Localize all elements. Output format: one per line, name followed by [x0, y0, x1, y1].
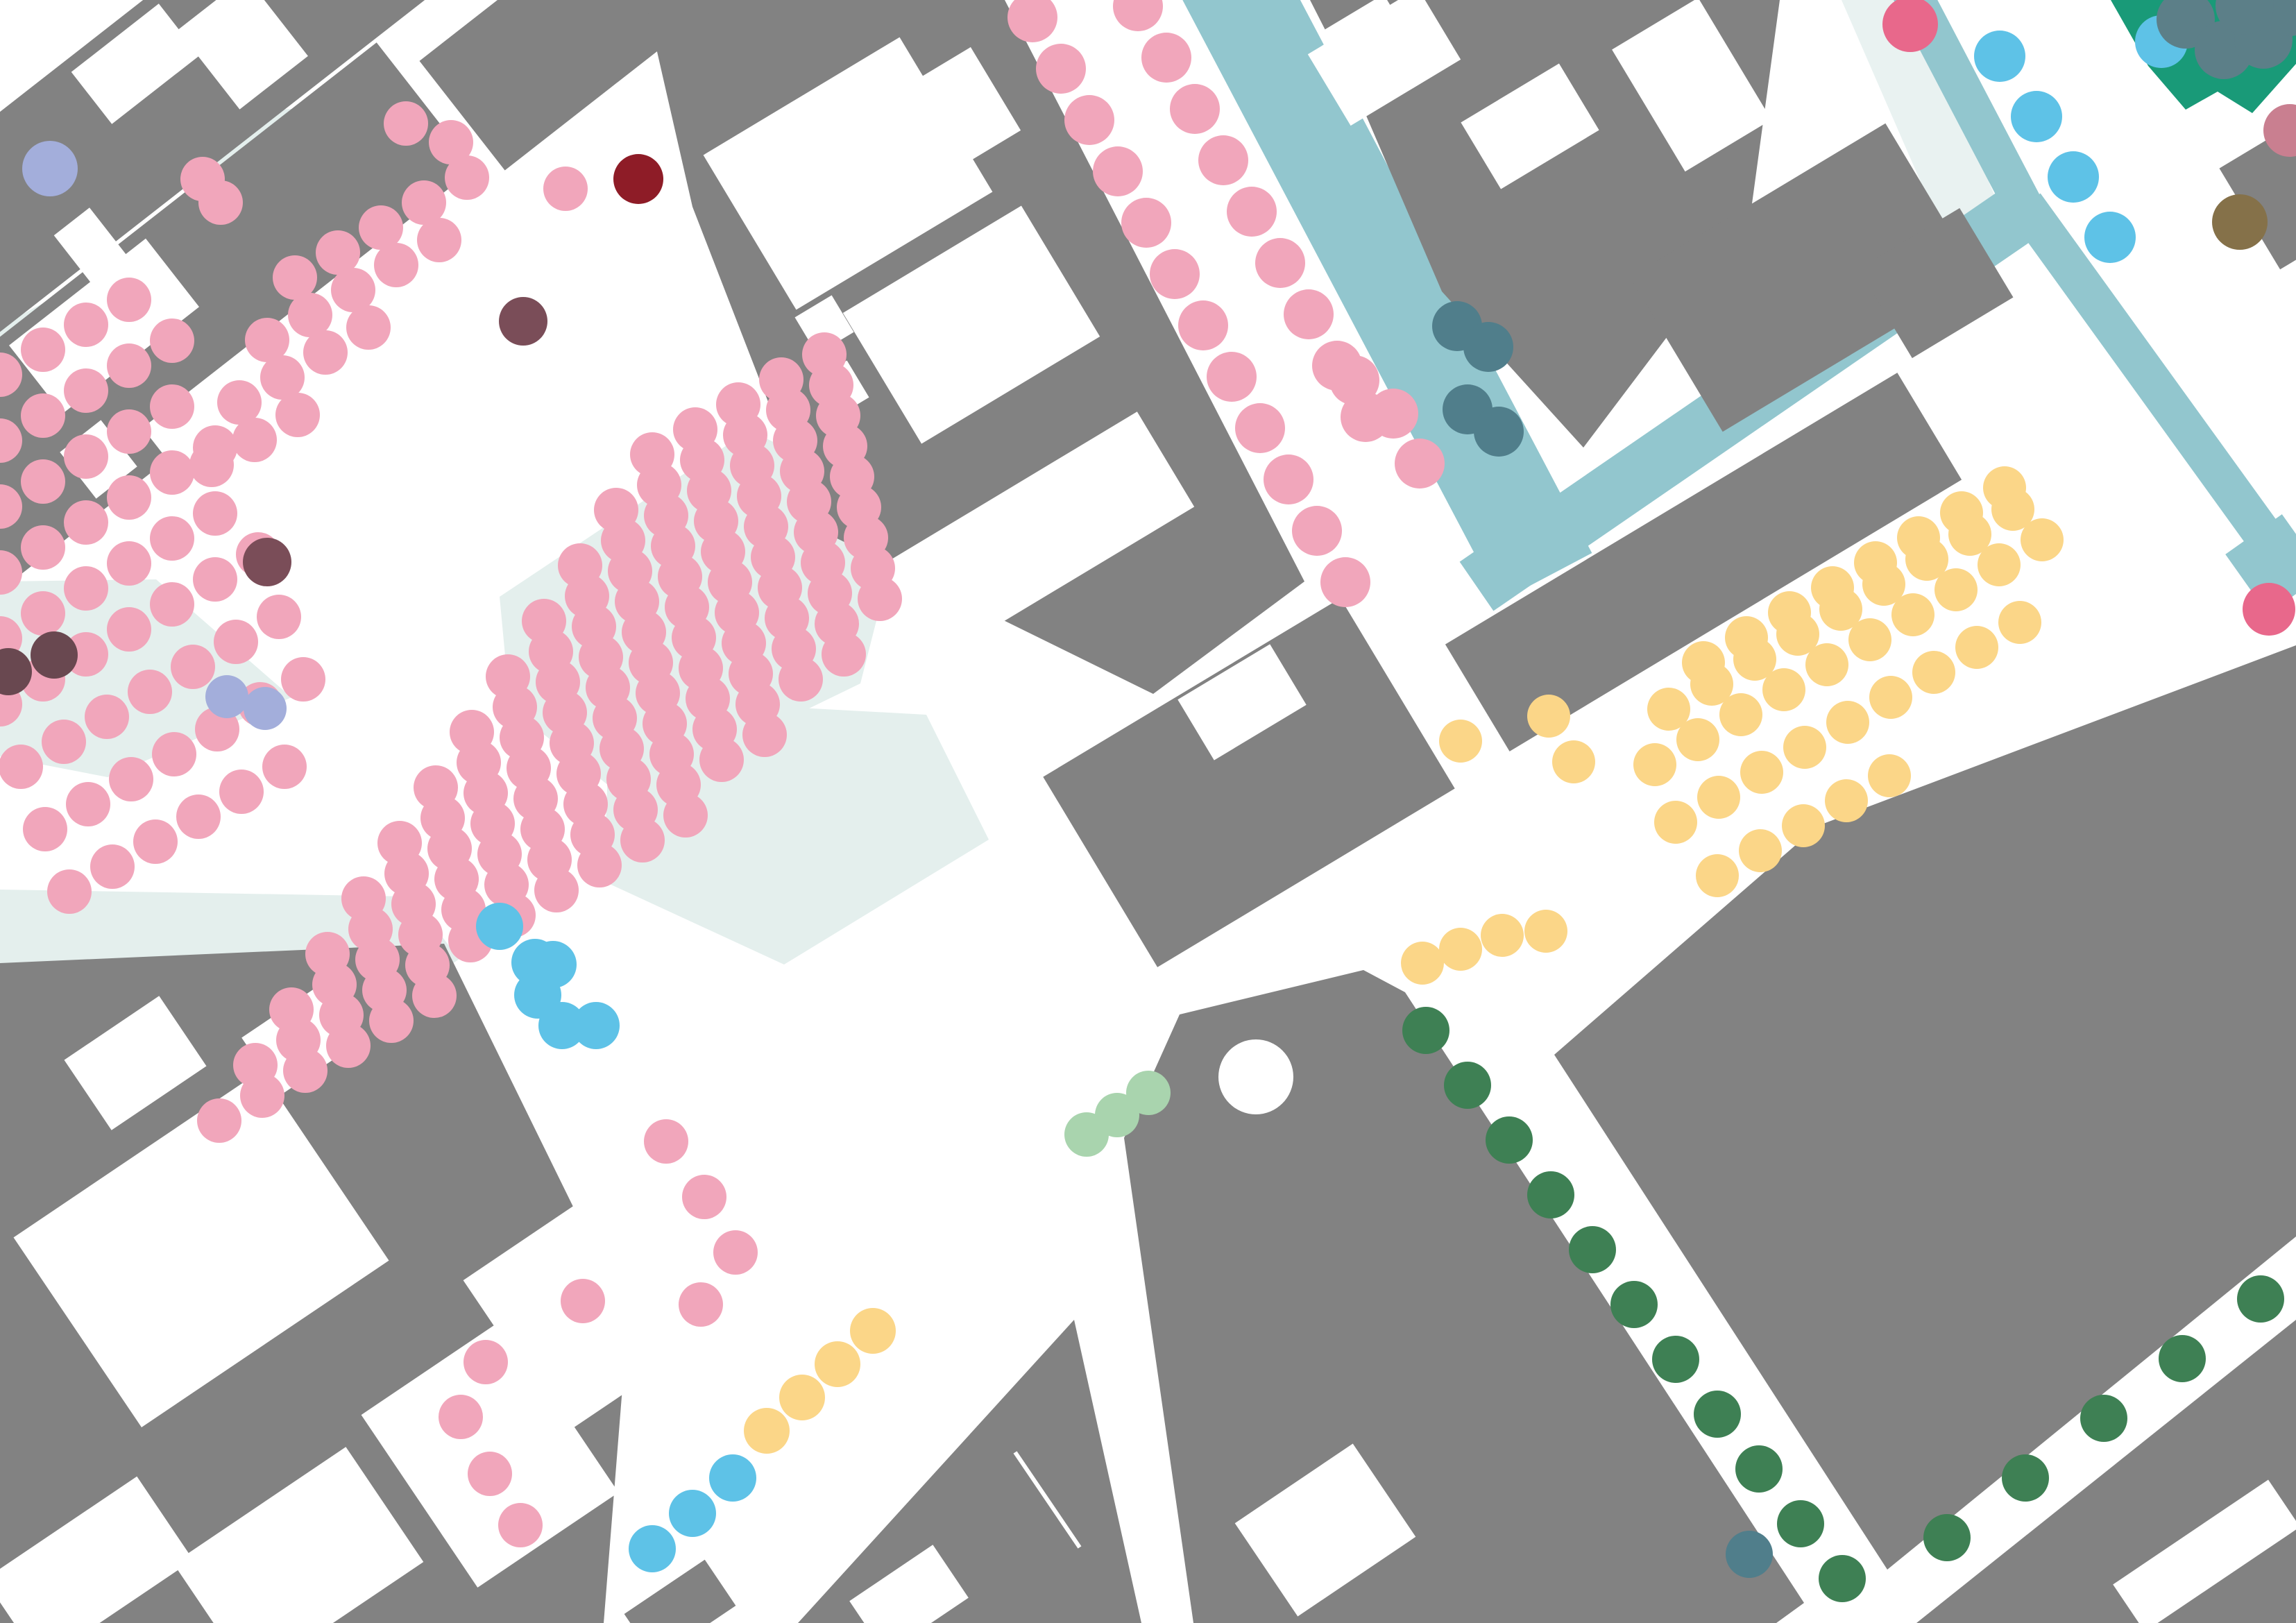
tree-dot-pink: [275, 393, 320, 437]
tree-dot-pink: [1036, 44, 1086, 94]
tree-dot-yellow: [1524, 910, 1567, 953]
tree-dot-pink: [21, 328, 65, 372]
tree-dot-green: [1652, 1336, 1699, 1383]
tree-dot-pink: [150, 582, 194, 627]
tree-dot-yellow: [1848, 618, 1891, 661]
tree-dot-teal-slate: [1726, 1531, 1773, 1578]
tree-dot-green: [1444, 1062, 1491, 1109]
tree-dot-sky-blue: [709, 1454, 756, 1502]
map-canvas[interactable]: [0, 0, 2296, 1623]
tree-dot-pink: [219, 770, 264, 814]
city-tree-map[interactable]: [0, 0, 2296, 1623]
tree-dot-pink: [107, 607, 151, 652]
tree-dot-dark-maroon: [31, 631, 78, 679]
tree-dot-pink: [779, 657, 823, 702]
tree-dot-pink: [171, 645, 215, 689]
tree-dot-pink: [150, 384, 194, 429]
tree-dot-yellow: [1868, 754, 1911, 797]
tree-dot-pink: [1235, 403, 1285, 453]
tree-dot-pink: [23, 807, 67, 851]
tree-dot-pink: [21, 459, 65, 504]
tree-dot-yellow: [1696, 854, 1739, 897]
tree-dot-pink: [1292, 506, 1342, 556]
tree-dot-yellow: [1934, 568, 1978, 611]
tree-dot-teal-slate: [1463, 322, 1513, 372]
tree-dot-dark-red: [613, 154, 663, 204]
tree-dot-pink: [1113, 0, 1163, 31]
tree-dot-pink: [374, 243, 418, 287]
courtyard-arc: [1218, 1039, 1293, 1114]
canal: [2025, 205, 2283, 562]
tree-dot-pink: [1255, 238, 1305, 288]
tree-dot-pink: [1093, 146, 1143, 196]
tree-dot-pink: [1395, 439, 1445, 488]
tree-dot-pink: [1227, 187, 1277, 237]
tree-dot-green: [1819, 1555, 1866, 1602]
tree-dot-yellow: [1955, 626, 1998, 669]
tree-dot-pink: [417, 218, 461, 262]
tree-dot-maroon: [243, 538, 291, 586]
tree-dot-pink: [468, 1452, 512, 1496]
tree-dot-pink: [1264, 454, 1313, 504]
tree-dot-green: [2080, 1395, 2127, 1442]
tree-dot-yellow: [744, 1408, 790, 1454]
tree-dot-pink: [21, 591, 65, 636]
tree-dot-green: [2237, 1275, 2284, 1323]
tree-dot-teal-slate: [1474, 407, 1524, 457]
tree-dot-pink: [369, 999, 414, 1043]
tree-dot-pink: [644, 1119, 688, 1164]
tree-dot-pink: [64, 368, 108, 413]
tree-dot-pink: [193, 491, 237, 536]
tree-dot-pink: [543, 167, 588, 211]
tree-dot-crimson: [2243, 583, 2295, 636]
tree-dot-pink: [1064, 95, 1114, 145]
tree-dot-pink: [534, 868, 579, 912]
tree-dot-yellow: [1912, 651, 1955, 694]
tree-dot-yellow: [1654, 801, 1697, 844]
tree-dot-pink: [1207, 352, 1257, 402]
tree-dot-pink: [1141, 33, 1191, 83]
tree-dot-pink: [21, 525, 65, 570]
tree-dot-pink: [384, 101, 428, 146]
tree-dot-pink: [107, 541, 151, 586]
tree-dot-yellow: [1891, 593, 1934, 636]
tree-dot-pink: [64, 566, 108, 611]
tree-dot-pink: [1329, 355, 1379, 405]
tree-dot-pink: [150, 516, 194, 561]
tree-dot-pink: [0, 745, 43, 789]
tree-dot-pink: [150, 318, 194, 363]
tree-dot-pink: [42, 720, 86, 764]
tree-dot-pink: [1368, 389, 1418, 439]
tree-dot-pink: [240, 1073, 284, 1118]
tree-dot-pink: [107, 475, 151, 520]
tree-dot-sky-blue: [572, 1002, 620, 1049]
tree-dot-green: [1694, 1391, 1741, 1438]
tree-dot-pink: [262, 745, 307, 789]
tree-dot-pink: [133, 819, 178, 864]
tree-dot-pink: [128, 670, 172, 714]
tree-dot-pink: [822, 632, 866, 677]
tree-dot-pink: [193, 557, 237, 602]
tree-dot-pink: [577, 843, 622, 887]
tree-dot-pink: [64, 500, 108, 545]
tree-dot-yellow: [1552, 740, 1595, 783]
tree-dot-pink: [47, 869, 92, 914]
tree-dot-sky-blue: [2048, 151, 2099, 203]
tree-dot-green: [1610, 1281, 1658, 1328]
tree-dot-yellow: [1439, 720, 1482, 763]
tree-dot-yellow: [1825, 779, 1868, 822]
tree-dot-pink: [858, 577, 902, 621]
tree-dot-olive: [2212, 194, 2268, 250]
tree-dot-pink: [682, 1175, 726, 1219]
tree-dot-yellow: [815, 1341, 860, 1387]
tree-dot-yellow: [2021, 518, 2064, 561]
tree-dot-green: [1486, 1116, 1533, 1164]
tree-dot-yellow: [1826, 701, 1869, 744]
tree-dot-yellow: [1719, 693, 1762, 736]
tree-dot-green: [1923, 1514, 1971, 1561]
tree-dot-sky-blue: [629, 1525, 676, 1572]
tree-dot-pink: [257, 595, 301, 639]
tree-dot-pink: [1320, 557, 1370, 607]
tree-dot-yellow: [1805, 643, 1848, 686]
tree-dot-pink: [1121, 198, 1171, 248]
tree-dot-pink: [679, 1282, 723, 1327]
tree-dot-pink: [326, 1023, 371, 1068]
tree-dot-pink: [189, 443, 234, 487]
tree-dot-pink: [1178, 300, 1228, 350]
tree-dot-pink: [150, 450, 194, 495]
tree-dot-sage: [1064, 1112, 1109, 1157]
tree-dot-pink: [412, 974, 457, 1018]
tree-dot-periwinkle: [244, 687, 287, 730]
tree-dot-yellow: [1783, 726, 1826, 769]
tree-dot-yellow: [1439, 928, 1482, 971]
tree-dot-green: [1527, 1171, 1574, 1218]
tree-dot-maroon: [499, 297, 547, 346]
tree-dot-pink: [176, 794, 221, 839]
tree-dot-pink: [90, 844, 135, 889]
tree-dot-pink: [85, 695, 129, 739]
tree-dot-pink: [281, 657, 325, 702]
tree-dot-yellow: [850, 1308, 896, 1354]
tree-dot-yellow: [1697, 776, 1740, 819]
tree-dot-yellow: [1869, 676, 1912, 719]
tree-dot-pink: [232, 418, 277, 462]
tree-dot-yellow: [1978, 543, 2021, 586]
tree-dot-green: [1569, 1226, 1616, 1273]
tree-dot-pink: [107, 409, 151, 454]
tree-dot-yellow: [1481, 914, 1524, 957]
tree-dot-pink: [439, 1395, 483, 1439]
tree-dot-pink: [303, 330, 348, 375]
tree-dot-yellow: [1998, 601, 2041, 644]
tree-dot-yellow: [1782, 804, 1825, 847]
tree-dot-pink: [64, 303, 108, 347]
tree-dot-pink: [498, 1503, 543, 1547]
tree-dot-pink: [214, 620, 258, 664]
tree-dot-pink: [1198, 135, 1248, 185]
tree-dot-pink: [346, 305, 391, 350]
tree-dot-yellow: [779, 1375, 825, 1420]
tree-dot-green: [1402, 1007, 1449, 1054]
tree-dot-pink: [742, 713, 787, 757]
tree-dot-yellow: [1740, 751, 1783, 794]
tree-dot-sky-blue: [2011, 91, 2062, 142]
tree-dot-sky-blue: [1974, 31, 2025, 82]
tree-dot-pink: [107, 278, 151, 322]
tree-dot-pink: [109, 757, 153, 801]
tree-dot-sky-blue: [476, 903, 523, 950]
tree-dot-pink: [21, 393, 65, 438]
tree-dot-yellow: [1762, 668, 1805, 711]
tree-dot-pink: [1284, 289, 1334, 339]
tree-dot-pink: [429, 120, 473, 164]
tree-dot-green: [2159, 1335, 2206, 1382]
tree-dot-pink: [620, 818, 665, 863]
tree-dot-pink: [713, 1230, 758, 1275]
tree-dot-pink: [198, 180, 243, 225]
tree-dot-pink: [66, 782, 110, 826]
tree-dot-green: [2002, 1454, 2049, 1502]
tree-dot-pink: [283, 1048, 328, 1093]
tree-dot-pink: [561, 1279, 605, 1323]
tree-dot-pink: [464, 1340, 508, 1384]
tree-dot-sky-blue: [2084, 212, 2136, 263]
tree-dot-pink: [197, 1098, 241, 1143]
tree-dot-yellow: [1739, 829, 1782, 872]
tree-dot-pink: [1170, 84, 1220, 134]
tree-dot-green: [1735, 1445, 1783, 1493]
tree-dot-yellow: [1527, 695, 1570, 738]
tree-dot-pink: [152, 732, 196, 776]
tree-dot-yellow: [1633, 743, 1676, 786]
tree-dot-pink: [699, 738, 744, 782]
tree-dot-pink: [1150, 249, 1200, 299]
tree-dot-periwinkle: [22, 141, 78, 196]
tree-dot-pink: [64, 434, 108, 479]
tree-dot-sky-blue: [669, 1490, 716, 1537]
tree-dot-periwinkle: [205, 675, 248, 718]
tree-dot-pink: [663, 793, 708, 838]
tree-dot-green: [1777, 1500, 1824, 1547]
tree-dot-yellow: [1676, 718, 1719, 761]
tree-dot-yellow: [1401, 942, 1444, 985]
tree-dot-pink: [107, 343, 151, 388]
